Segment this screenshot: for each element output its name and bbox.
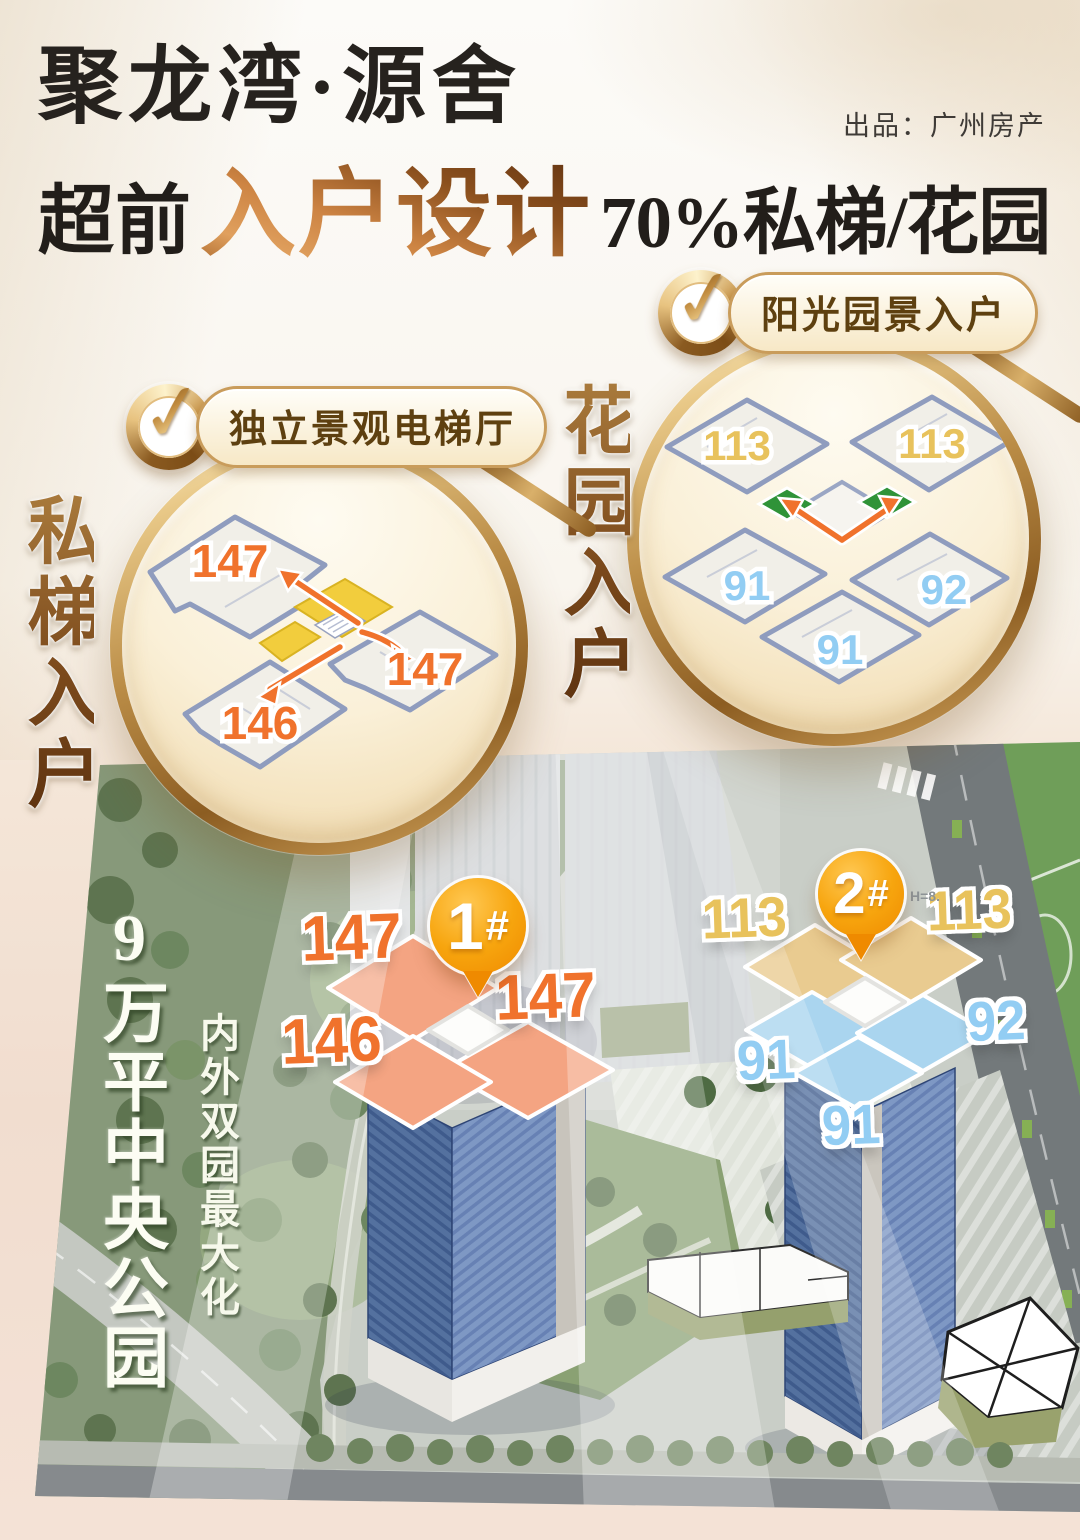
badge-label: 独立景观电梯厅 (196, 386, 547, 468)
check-icon: ✓ (126, 384, 212, 470)
private-elevator-diagram: 147 147 146 (110, 437, 528, 855)
badge-label: 阳光园景入户 (728, 272, 1038, 354)
subtitle-prefix: 超前 (38, 159, 192, 269)
check-glyph: ✓ (667, 255, 743, 341)
plan-left-unit-146: 146 (222, 697, 299, 749)
building1-marker-number: 1 (447, 893, 484, 959)
floorplan-right-illustration: 113 113 91 92 91 (647, 352, 1027, 732)
building1-unit-146: 146 (280, 1006, 382, 1074)
plan-right-unit-92: 92 (921, 566, 968, 613)
building2-marker-number: 2 (833, 865, 865, 923)
subtitle-highlight: 入户设计 (200, 136, 592, 275)
private-elevator-diagram-face: 147 147 146 (122, 449, 516, 843)
plan-right-unit-113-a: 113 (703, 422, 771, 469)
garden-entry-diagram-face: 113 113 91 92 91 (639, 344, 1029, 734)
subtitle: 超前 入户设计 70%私梯/花园 (38, 136, 1068, 275)
park-label-big: 9万平中央公园 (96, 902, 162, 1392)
badge-sunny-garden-entry: ✓ 阳光园景入户 (658, 270, 1038, 356)
side-label-garden-entry: 花园入户 (556, 382, 630, 706)
plan-right-unit-91-b: 91 (817, 626, 864, 673)
badge-private-elevator-hall: ✓ 独立景观电梯厅 (126, 384, 547, 470)
check-icon: ✓ (658, 270, 744, 356)
park-label-small: 内外双园最大化 (196, 1012, 236, 1320)
building2-marker-hash: # (868, 875, 889, 913)
building2-unit-91-b: 91 (821, 1096, 881, 1154)
page-title: 聚龙湾·源舍 (38, 44, 522, 132)
building1-unit-147-b: 147 (494, 962, 596, 1030)
building2-marker: 2 # (818, 851, 904, 937)
site-aerial-rendering: 9万平中央公园 内外双园最大化 147 147 146 1 # 113 113 … (0, 740, 1080, 1540)
check-icon-disc: ✓ (138, 396, 200, 458)
plan-left-unit-147-a: 147 (192, 535, 269, 587)
plan-left-unit-147-b: 147 (387, 643, 464, 695)
subtitle-suffix: 70%私梯/花园 (600, 163, 1050, 269)
building2-height-note: H=8. (910, 888, 940, 904)
check-glyph: ✓ (135, 369, 211, 455)
building2-unit-91-a: 91 (736, 1031, 796, 1089)
poster: 聚龙湾·源舍 出品：广州房产 超前 入户设计 70%私梯/花园 (0, 0, 1080, 1540)
building1-marker-hash: # (486, 905, 509, 947)
garden-entry-diagram: 113 113 91 92 91 (627, 332, 1041, 746)
plan-right-unit-91-a: 91 (724, 562, 771, 609)
floorplan-left-illustration: 147 147 146 (130, 457, 510, 837)
check-icon-disc: ✓ (670, 282, 732, 344)
building1-unit-147-a: 147 (300, 903, 402, 971)
building2-unit-113-a: 113 (701, 888, 788, 947)
side-label-private-elevator: 私梯入户 (20, 492, 94, 816)
plan-right-unit-113-b: 113 (898, 420, 966, 467)
building2-unit-92: 92 (966, 992, 1026, 1050)
building1-marker: 1 # (430, 878, 526, 974)
